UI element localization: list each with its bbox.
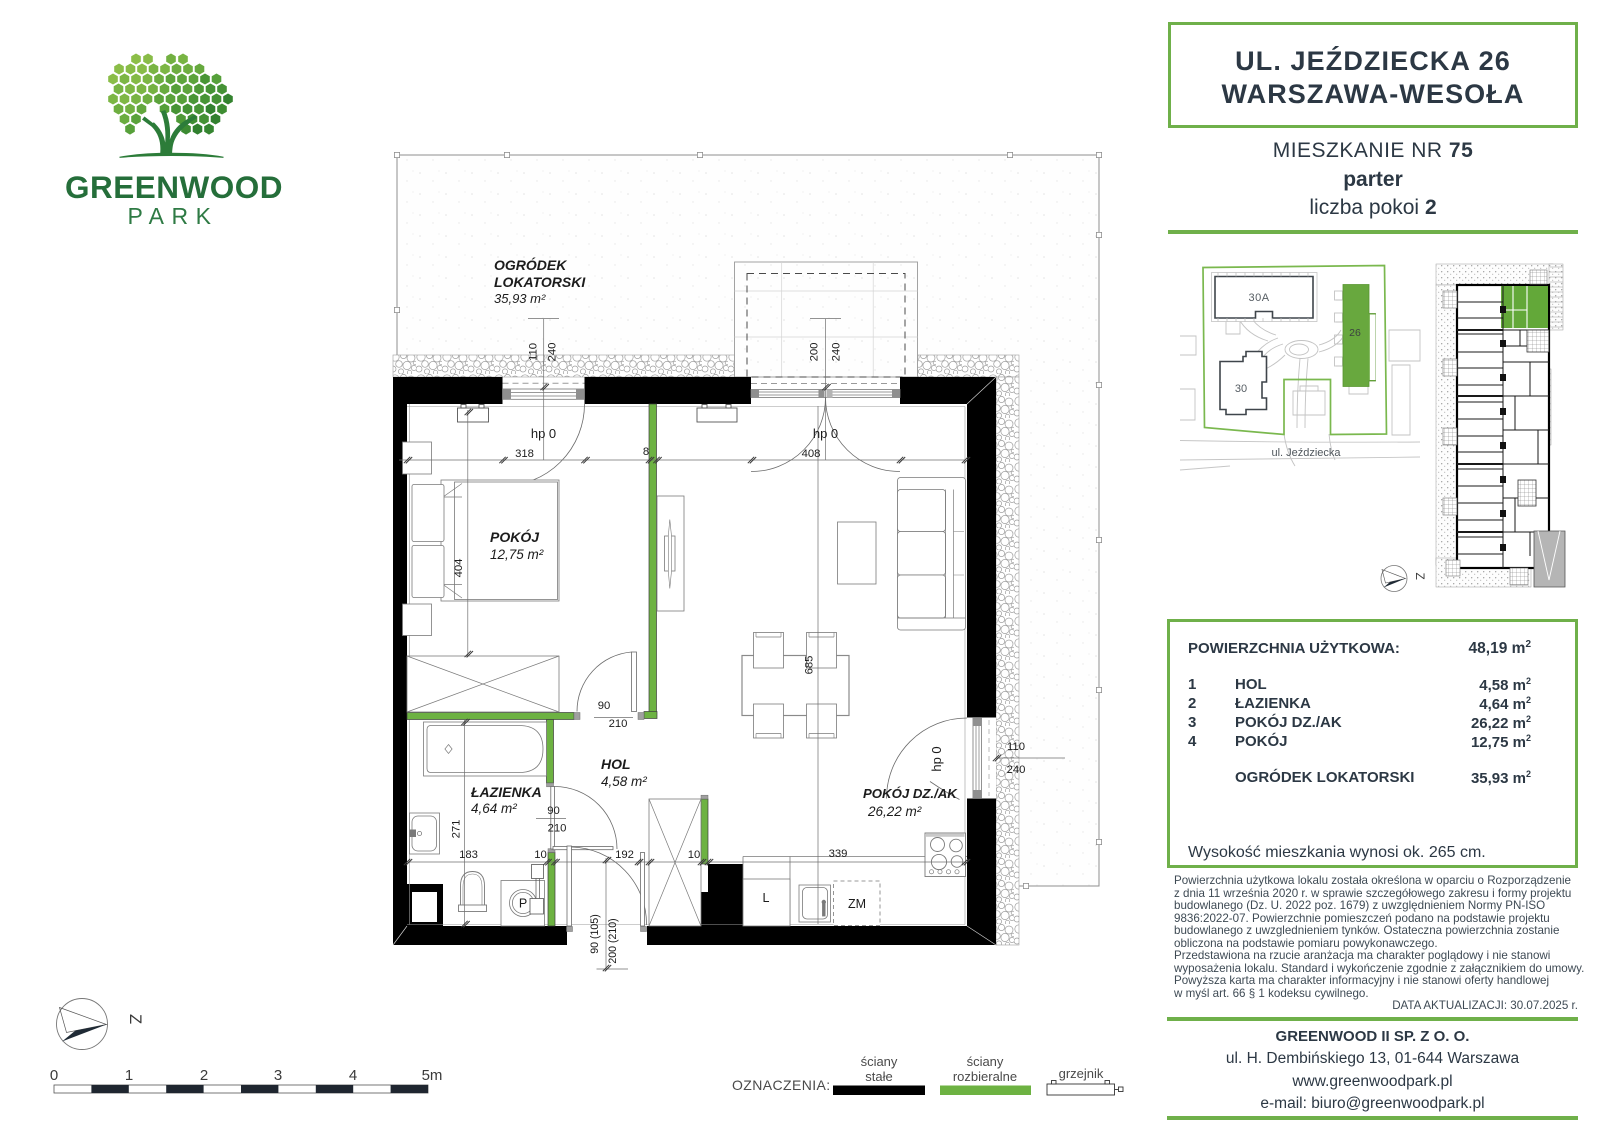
- svg-text:hp 0: hp 0: [531, 426, 556, 441]
- svg-text:26: 26: [1349, 327, 1361, 339]
- svg-text:30A: 30A: [1248, 292, 1269, 304]
- svg-text:5m: 5m: [422, 1067, 443, 1084]
- svg-text:HOL: HOL: [601, 756, 631, 772]
- svg-text:12,75 m²: 12,75 m²: [490, 547, 544, 562]
- svg-text:26,22 m²: 26,22 m²: [867, 804, 922, 819]
- svg-text:408: 408: [802, 448, 821, 460]
- svg-text:4,58 m²: 4,58 m²: [601, 774, 647, 789]
- svg-text:210: 210: [609, 718, 628, 730]
- svg-text:P: P: [519, 897, 527, 911]
- svg-text:ŁAZIENKA: ŁAZIENKA: [470, 784, 542, 800]
- svg-text:3: 3: [274, 1067, 282, 1084]
- svg-text:POKÓJ: POKÓJ: [490, 528, 540, 545]
- svg-text:30: 30: [1235, 383, 1247, 395]
- svg-text:0: 0: [50, 1067, 58, 1084]
- svg-text:90: 90: [598, 700, 611, 712]
- svg-text:grzejnik: grzejnik: [1059, 1066, 1104, 1081]
- svg-text:110: 110: [528, 343, 540, 361]
- svg-text:4: 4: [349, 1067, 357, 1084]
- svg-text:1: 1: [125, 1067, 133, 1084]
- svg-text:200 (210): 200 (210): [607, 918, 619, 963]
- svg-text:192: 192: [615, 849, 634, 861]
- svg-text:stałe: stałe: [865, 1069, 892, 1084]
- svg-text:2: 2: [200, 1067, 208, 1084]
- svg-text:685: 685: [804, 656, 816, 675]
- svg-text:Z: Z: [1413, 573, 1427, 580]
- svg-text:404: 404: [453, 559, 465, 578]
- svg-text:Z: Z: [126, 1014, 144, 1024]
- svg-text:10: 10: [534, 849, 547, 861]
- svg-text:8: 8: [643, 446, 649, 458]
- svg-text:L: L: [763, 891, 770, 905]
- svg-text:110: 110: [1007, 741, 1025, 753]
- svg-text:OZNACZENIA:: OZNACZENIA:: [732, 1077, 831, 1093]
- svg-text:ZM: ZM: [848, 897, 866, 911]
- svg-text:200: 200: [809, 343, 821, 362]
- svg-text:35,93 m²: 35,93 m²: [494, 291, 546, 306]
- svg-text:PARK: PARK: [128, 203, 219, 229]
- svg-text:4,64 m²: 4,64 m²: [471, 801, 517, 816]
- svg-text:POKÓJ DZ./AK: POKÓJ DZ./AK: [863, 786, 958, 801]
- svg-text:10: 10: [688, 849, 701, 861]
- svg-text:339: 339: [829, 848, 848, 860]
- svg-text:90 (105): 90 (105): [589, 914, 601, 953]
- svg-text:ściany: ściany: [861, 1054, 898, 1069]
- svg-text:hp 0: hp 0: [813, 426, 838, 441]
- svg-text:183: 183: [459, 849, 478, 861]
- svg-text:ul. Jeździecka: ul. Jeździecka: [1271, 447, 1341, 459]
- svg-text:ściany: ściany: [967, 1054, 1004, 1069]
- svg-text:210: 210: [548, 823, 567, 835]
- svg-text:GREENWOOD: GREENWOOD: [65, 169, 283, 205]
- svg-text:318: 318: [515, 448, 534, 460]
- svg-text:90: 90: [547, 805, 560, 817]
- svg-text:240: 240: [831, 343, 843, 362]
- svg-text:LOKATORSKI: LOKATORSKI: [494, 274, 586, 290]
- svg-text:240: 240: [1007, 764, 1026, 776]
- svg-text:OGRÓDEK: OGRÓDEK: [494, 256, 567, 273]
- svg-text:271: 271: [451, 820, 463, 839]
- svg-text:rozbieralne: rozbieralne: [953, 1069, 1017, 1084]
- svg-text:hp 0: hp 0: [929, 746, 944, 771]
- svg-text:240: 240: [547, 343, 559, 362]
